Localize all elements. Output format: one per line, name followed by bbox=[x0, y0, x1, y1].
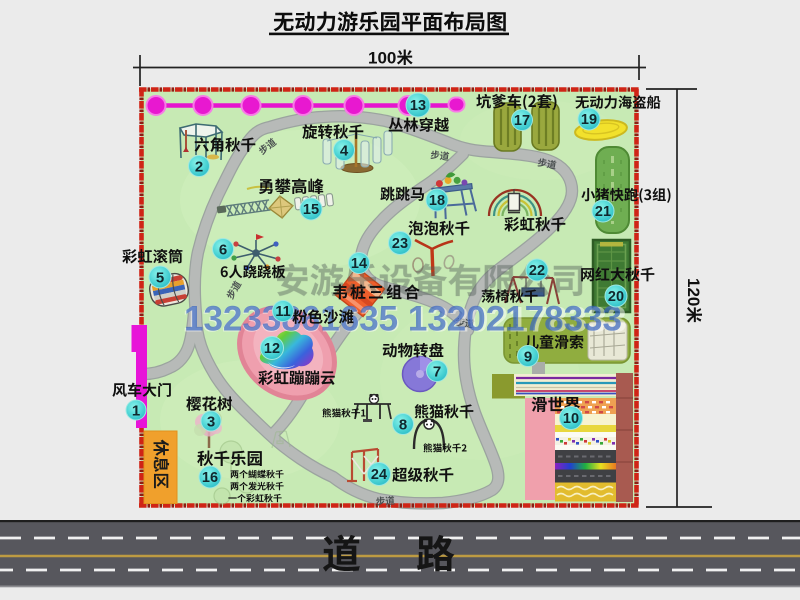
svg-text:3: 3 bbox=[207, 413, 215, 430]
svg-text:7: 7 bbox=[433, 363, 441, 380]
svg-text:10: 10 bbox=[563, 411, 579, 427]
svg-text:5: 5 bbox=[156, 269, 164, 286]
svg-text:17: 17 bbox=[514, 113, 530, 129]
svg-text:21: 21 bbox=[595, 204, 611, 220]
svg-text:18: 18 bbox=[429, 193, 445, 209]
svg-text:1: 1 bbox=[132, 402, 140, 419]
svg-text:14: 14 bbox=[351, 256, 367, 272]
svg-text:16: 16 bbox=[202, 470, 218, 486]
svg-text:19: 19 bbox=[581, 112, 597, 128]
svg-text:13: 13 bbox=[410, 98, 426, 114]
svg-text:120: 120 bbox=[684, 278, 703, 306]
svg-text:6: 6 bbox=[219, 241, 227, 258]
svg-text:22: 22 bbox=[529, 263, 545, 279]
svg-text:13233861635 13202178333: 13233861635 13202178333 bbox=[184, 300, 622, 339]
svg-text:9: 9 bbox=[524, 348, 532, 365]
svg-text:15: 15 bbox=[303, 202, 319, 218]
svg-text:20: 20 bbox=[608, 289, 624, 305]
svg-text:11: 11 bbox=[275, 304, 290, 320]
svg-text:8: 8 bbox=[399, 416, 407, 433]
svg-text:12: 12 bbox=[264, 341, 280, 357]
svg-text:100: 100 bbox=[368, 49, 396, 68]
svg-text:4: 4 bbox=[340, 142, 349, 159]
svg-text:2: 2 bbox=[195, 158, 203, 175]
svg-text:23: 23 bbox=[392, 236, 408, 252]
svg-text:24: 24 bbox=[371, 467, 387, 483]
